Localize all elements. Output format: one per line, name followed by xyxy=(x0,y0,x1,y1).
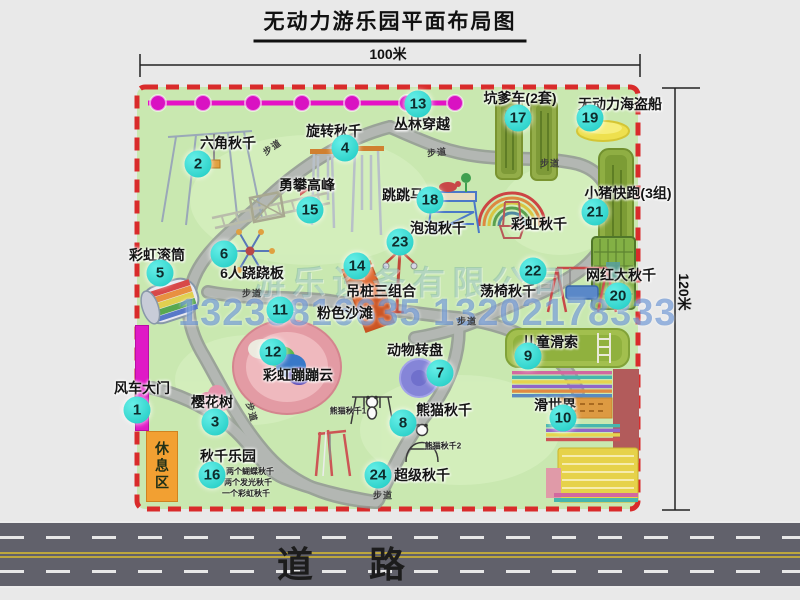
badge-16: 16 xyxy=(199,462,226,489)
badge-23: 23 xyxy=(387,229,414,256)
badge-6: 6 xyxy=(211,241,238,268)
walkway-label: 步道 xyxy=(540,157,560,170)
panda-swing-2-label: 熊猫秋千2 xyxy=(425,441,461,452)
walkway-label: 步道 xyxy=(426,144,447,159)
attraction-label-animal-turntable: 动物转盘 xyxy=(387,340,443,360)
badge-10: 10 xyxy=(550,405,577,432)
road-label: 道 路 xyxy=(277,536,405,588)
width-dimension-label: 100米 xyxy=(369,44,406,64)
swing-park-item-2: 两个发光秋千 xyxy=(224,477,272,488)
attraction-label-rainbow-swing: 彩虹秋千 xyxy=(511,214,567,234)
badge-11: 11 xyxy=(267,297,294,324)
badge-12: 12 xyxy=(260,339,287,366)
badge-9: 9 xyxy=(515,343,542,370)
attraction-label-windmill-gate: 风车大门 xyxy=(114,378,170,398)
rest-area-box: 休息区 xyxy=(146,431,178,502)
attraction-label-hexagon-swing: 六角秋千 xyxy=(200,133,256,153)
badge-24: 24 xyxy=(365,462,392,489)
badge-19: 19 xyxy=(577,105,604,132)
badge-7: 7 xyxy=(427,360,454,387)
badge-8: 8 xyxy=(390,410,417,437)
height-dimension-label: 120米 xyxy=(674,273,694,310)
badge-1: 1 xyxy=(124,397,151,424)
attraction-label-super-swing: 超级秋千 xyxy=(394,465,450,485)
badge-13: 13 xyxy=(405,91,432,118)
attraction-label-bounce-cloud: 彩虹蹦蹦云 xyxy=(263,365,333,385)
park-layout-map: 游乐设备有限公司 13233816635 13202178333 无动力游乐园平… xyxy=(0,0,800,600)
attraction-label-jungle-crossing: 丛林穿越 xyxy=(394,114,450,134)
attraction-label-swing-chair: 荡椅秋千 xyxy=(480,281,536,301)
badge-5: 5 xyxy=(147,260,174,287)
badge-14: 14 xyxy=(344,253,371,280)
badge-22: 22 xyxy=(520,258,547,285)
badge-17: 17 xyxy=(505,105,532,132)
attraction-label-panda-swing: 熊猫秋千 xyxy=(416,400,472,420)
attraction-label-bubble-swing: 泡泡秋千 xyxy=(410,218,466,238)
badge-3: 3 xyxy=(202,409,229,436)
walkway-label: 步道 xyxy=(457,315,477,328)
badge-18: 18 xyxy=(417,187,444,214)
badge-20: 20 xyxy=(605,283,632,310)
swing-park-item-1: 两个蝴蝶秋千 xyxy=(226,466,274,477)
rest-area-label: 休息区 xyxy=(152,441,172,492)
badge-2: 2 xyxy=(185,151,212,178)
swing-park-item-3: 一个彩虹秋千 xyxy=(222,488,270,499)
attraction-label-climbing-peak: 勇攀高峰 xyxy=(279,175,335,195)
attraction-label-hanging-pile: 吊桩三组合 xyxy=(346,281,416,301)
badge-21: 21 xyxy=(582,199,609,226)
badge-4: 4 xyxy=(332,135,359,162)
page-title: 无动力游乐园平面布局图 xyxy=(254,6,527,43)
walkway-label: 步道 xyxy=(242,287,262,300)
panda-swing-1-label: 熊猫秋千1 xyxy=(330,406,366,417)
attraction-label-pink-beach: 粉色沙滩 xyxy=(317,303,373,323)
badge-15: 15 xyxy=(297,197,324,224)
walkway-label: 步道 xyxy=(373,489,393,502)
